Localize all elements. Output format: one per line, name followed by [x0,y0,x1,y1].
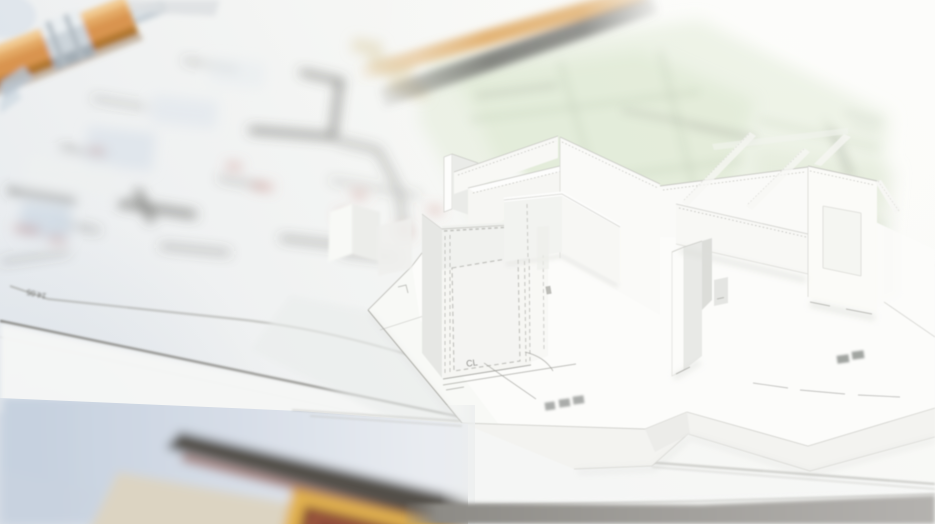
svg-text:CL: CL [466,357,479,369]
